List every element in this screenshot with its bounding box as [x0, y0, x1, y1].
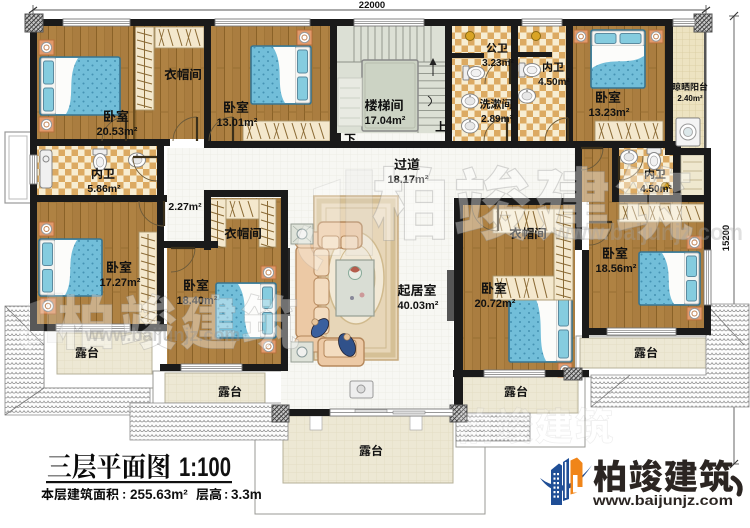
svg-text:2.27m²: 2.27m² [168, 201, 202, 213]
svg-text:40.03m²: 40.03m² [398, 300, 439, 312]
svg-text:20.72m²: 20.72m² [475, 298, 516, 310]
svg-text:22000: 22000 [359, 0, 385, 11]
svg-text:2.89m²: 2.89m² [481, 114, 513, 125]
svg-text:255.63m²: 255.63m² [130, 487, 188, 502]
svg-text:www.baijunjz.com: www.baijunjz.com [84, 325, 240, 345]
svg-text:2.40m²: 2.40m² [677, 94, 703, 103]
svg-text:13.23m²: 13.23m² [589, 107, 630, 119]
svg-text:18.56m²: 18.56m² [596, 263, 637, 275]
svg-text:17.27m²: 17.27m² [100, 277, 141, 289]
svg-text:3.23m²: 3.23m² [482, 58, 514, 69]
svg-text:17.04m²: 17.04m² [365, 115, 406, 127]
svg-text::: : [122, 487, 126, 502]
svg-text:www.baijunjz.com: www.baijunjz.com [592, 493, 733, 508]
svg-text:www.baijunjz.com: www.baijunjz.com [552, 219, 743, 245]
svg-text:1:100: 1:100 [179, 452, 231, 482]
svg-text:5.86m²: 5.86m² [87, 183, 121, 195]
svg-text:13.01m²: 13.01m² [217, 117, 258, 129]
svg-text:4.50m²: 4.50m² [538, 77, 570, 88]
svg-text:3.3m: 3.3m [231, 487, 262, 502]
svg-text::: : [224, 487, 228, 502]
svg-text:20.53m²: 20.53m² [97, 126, 138, 138]
